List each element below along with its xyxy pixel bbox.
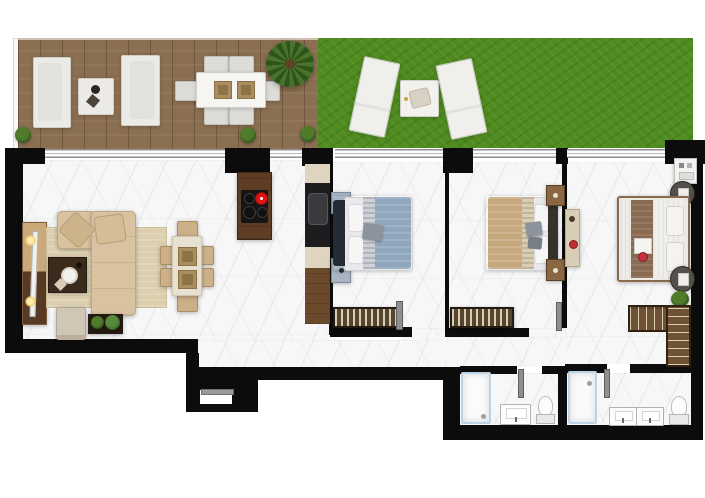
wall [225,148,270,173]
counter-wood [305,268,330,324]
outdoor-dining-chair [204,107,229,125]
cooktop [241,190,268,223]
burner [244,193,255,204]
wall [330,328,402,337]
armchair [56,307,86,340]
duvet-foot [621,200,631,278]
wall [5,339,198,353]
shrub [300,126,316,142]
outdoor-dining-chair [175,81,198,101]
floor-plan [0,0,705,498]
coffee-table [48,257,87,293]
entry-door [201,389,234,395]
hallway-floor [198,340,447,367]
outdoor-sofa [121,55,160,126]
wardrobe [666,305,691,367]
shower [461,372,491,424]
wall [5,148,23,353]
kitchen-counter [305,164,330,324]
wall [198,367,447,380]
decor-item [76,262,82,268]
kitchen-sink [308,193,328,225]
vanity-sink [636,407,664,426]
headboard [333,200,345,266]
door-bathroom-2 [604,369,610,398]
bed-bedroom-1 [333,196,411,270]
nightstand [546,259,565,281]
dining-table [172,236,202,296]
decor-flower [569,240,578,249]
folded-towel [408,87,432,109]
radiator [450,307,514,328]
door-bathroom-1 [518,369,524,398]
window-bedroom-2 [473,149,556,158]
vanity-sink [609,407,637,426]
sofa-cushion [130,61,154,119]
throw-pillow [93,213,127,245]
decor-item [404,97,408,101]
table-lamp [25,235,36,246]
palm-pot [285,59,295,69]
potted-palm [266,41,314,87]
counter-appliance-black [305,183,330,247]
burner [243,206,256,219]
door-bedroom-2 [556,302,562,331]
wall [443,425,703,440]
outdoor-coffee-table [78,78,114,115]
wall [402,327,412,337]
outdoor-dining-chair [229,107,254,125]
nightstand [546,185,565,206]
decor-item [86,94,100,108]
wall [443,148,473,173]
ac-unit [674,158,697,184]
vanity-sink [500,404,531,425]
round-nightstand [670,266,695,292]
outdoor-dining-table [196,72,266,108]
headboard [548,200,558,266]
lamp [553,193,558,198]
dining-chair [177,295,198,312]
window-bedroom-3 [567,149,665,158]
hallway-floor [447,337,567,367]
placemat [214,81,232,99]
wall [513,328,529,337]
duvet [488,197,522,269]
plant [91,316,104,329]
burner [257,207,268,218]
bed-runner [631,200,653,278]
wall [445,328,513,337]
window-bedroom-1 [335,149,443,158]
plant-stand [88,314,123,334]
lounger-side-table [400,80,439,117]
plant [105,315,120,330]
desk [565,209,580,267]
burner-on [255,192,268,205]
placemat [237,81,255,99]
decor-item [569,216,575,222]
toilet [536,396,553,424]
throw-pillow [525,221,543,237]
wall [558,366,567,425]
kitchen-island [237,172,272,240]
throw-blanket [362,223,384,242]
throw-pillow [527,236,542,249]
window-kitchen [270,149,302,158]
placemat [178,247,197,266]
outdoor-sofa [33,57,71,128]
pillow [666,206,684,236]
planter [15,127,31,143]
door-bedroom-1 [396,301,403,330]
decor-flower [638,252,648,262]
sofa-cushion [38,63,62,121]
radiator [333,307,401,328]
table-lamp [25,296,36,307]
shower [568,371,597,424]
toilet [669,396,687,425]
wall [445,172,449,328]
sliding-door-living [45,149,225,158]
shrub [240,127,256,143]
lamp [553,268,558,273]
placemat [178,270,197,289]
decor-item [91,85,100,94]
